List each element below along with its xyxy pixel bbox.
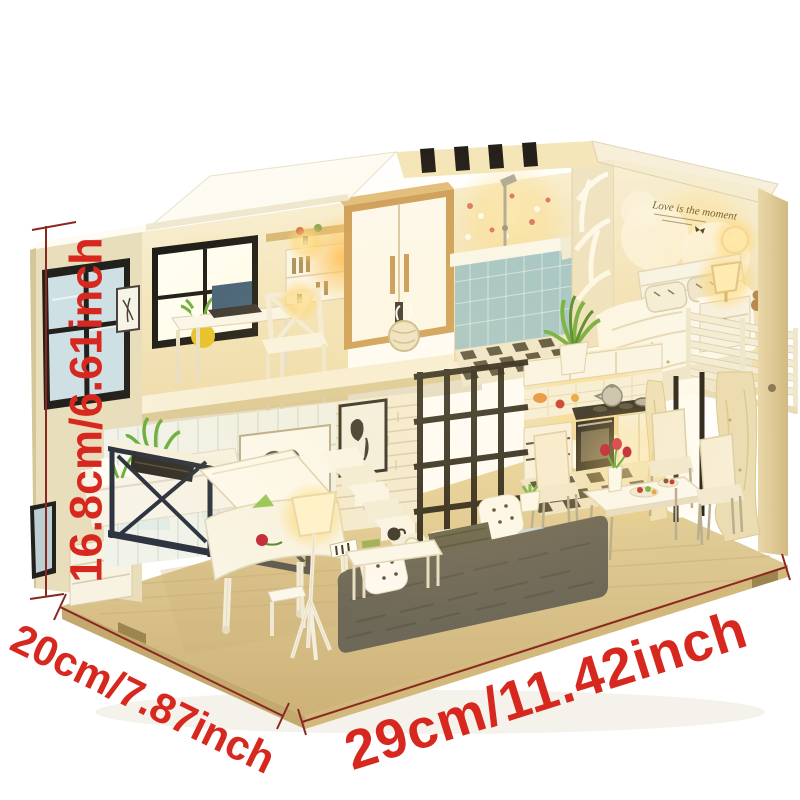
height-dimension-label: 16.8cm/6.61inch [64,237,109,582]
warm-light-wash [100,150,780,630]
product-photo: Love is the moment [0,0,800,800]
